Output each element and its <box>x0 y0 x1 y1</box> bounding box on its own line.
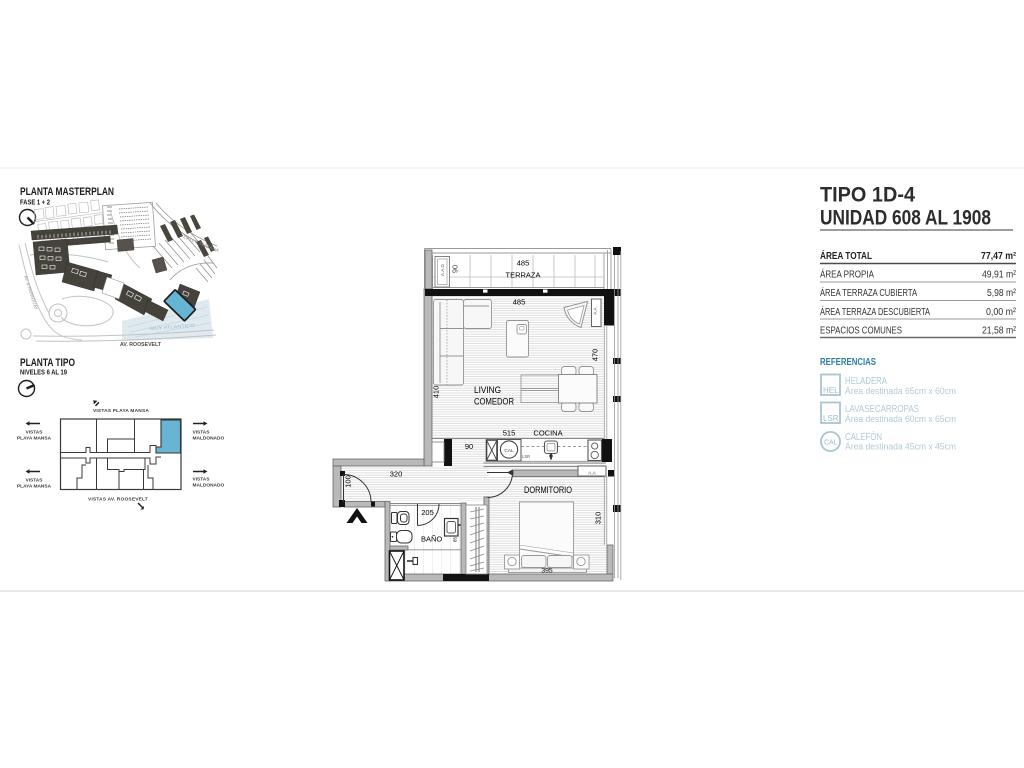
svg-text:AV. ROOSEVELT: AV. ROOSEVELT <box>120 342 161 348</box>
svg-text:NIVELES 6 AL 19: NIVELES 6 AL 19 <box>20 368 67 377</box>
svg-text:VISTAS: VISTAS <box>26 430 44 436</box>
svg-text:205: 205 <box>421 508 434 517</box>
svg-text:485: 485 <box>517 259 530 268</box>
svg-text:85: 85 <box>453 537 458 543</box>
svg-text:0,00 m²: 0,00 m² <box>986 307 1017 318</box>
svg-text:VISTAS PLAYA MANSA: VISTAS PLAYA MANSA <box>93 408 149 414</box>
svg-text:410: 410 <box>432 386 441 399</box>
svg-text:90: 90 <box>451 265 460 273</box>
svg-text:A.A: A.A <box>588 471 597 477</box>
svg-text:HEL: HEL <box>823 386 839 395</box>
svg-text:485: 485 <box>513 298 526 307</box>
svg-text:MALDONADO: MALDONADO <box>193 483 225 489</box>
svg-text:COMEDOR: COMEDOR <box>474 397 514 408</box>
svg-text:21,58 m²: 21,58 m² <box>982 326 1017 337</box>
svg-text:BAÑO: BAÑO <box>421 535 442 544</box>
svg-text:VISTAS: VISTAS <box>26 478 44 484</box>
svg-text:515: 515 <box>503 429 516 438</box>
svg-text:ÁREA TERRAZA DESCUBIERTA: ÁREA TERRAZA DESCUBIERTA <box>820 305 930 318</box>
svg-text:Área destinada 45cm x 45cm: Área destinada 45cm x 45cm <box>845 442 956 452</box>
svg-text:PLANTA MASTERPLAN: PLANTA MASTERPLAN <box>20 186 114 198</box>
svg-text:VISTAS: VISTAS <box>193 477 211 483</box>
svg-text:395: 395 <box>541 568 553 575</box>
svg-text:77,47 m²: 77,47 m² <box>981 251 1017 262</box>
svg-text:LSR: LSR <box>823 414 839 423</box>
svg-text:ESPACIOS COMUNES: ESPACIOS COMUNES <box>820 326 902 337</box>
svg-text:UNIDAD 608 AL 1908: UNIDAD 608 AL 1908 <box>820 207 991 230</box>
svg-text:Área destinada 65cm x 60cm: Área destinada 65cm x 60cm <box>845 386 956 396</box>
svg-text:TIPO 1D-4: TIPO 1D-4 <box>820 184 915 207</box>
svg-text:A.A.G: A.A.G <box>440 263 445 276</box>
svg-text:MALDONADO: MALDONADO <box>193 436 225 442</box>
svg-text:ÁREA TERRAZA CUBIERTA: ÁREA TERRAZA CUBIERTA <box>820 286 917 299</box>
svg-text:CAL: CAL <box>504 448 514 454</box>
svg-text:5,98 m²: 5,98 m² <box>987 288 1017 299</box>
svg-text:LIVING: LIVING <box>474 385 501 396</box>
svg-text:TERRAZA: TERRAZA <box>505 271 540 280</box>
svg-text:COCINA: COCINA <box>533 429 562 438</box>
svg-text:REFERENCIAS: REFERENCIAS <box>820 356 876 368</box>
svg-text:ÁREA TOTAL: ÁREA TOTAL <box>820 249 872 262</box>
svg-text:320: 320 <box>390 470 403 479</box>
svg-text:49,91 m²: 49,91 m² <box>982 270 1017 281</box>
svg-text:A.A: A.A <box>593 306 598 314</box>
svg-text:CAL: CAL <box>824 440 838 447</box>
svg-text:Área destinada 60cm x 65cm: Área destinada 60cm x 65cm <box>845 414 956 424</box>
svg-text:PLAYA MANSA: PLAYA MANSA <box>17 436 52 442</box>
svg-text:310: 310 <box>594 512 603 525</box>
svg-text:DORMITORIO: DORMITORIO <box>524 485 572 496</box>
svg-text:VISTAS: VISTAS <box>193 430 211 436</box>
svg-text:PLAYA MANSA: PLAYA MANSA <box>17 484 52 490</box>
svg-text:LSR: LSR <box>522 454 530 459</box>
svg-text:470: 470 <box>591 349 600 362</box>
svg-text:VISTAS AV. ROOSEVELT: VISTAS AV. ROOSEVELT <box>88 497 148 503</box>
svg-text:90: 90 <box>465 442 473 451</box>
svg-text:100: 100 <box>344 475 353 488</box>
svg-text:ÁREA PROPIA: ÁREA PROPIA <box>820 268 874 281</box>
svg-text:FASE 1 + 2: FASE 1 + 2 <box>20 198 50 207</box>
